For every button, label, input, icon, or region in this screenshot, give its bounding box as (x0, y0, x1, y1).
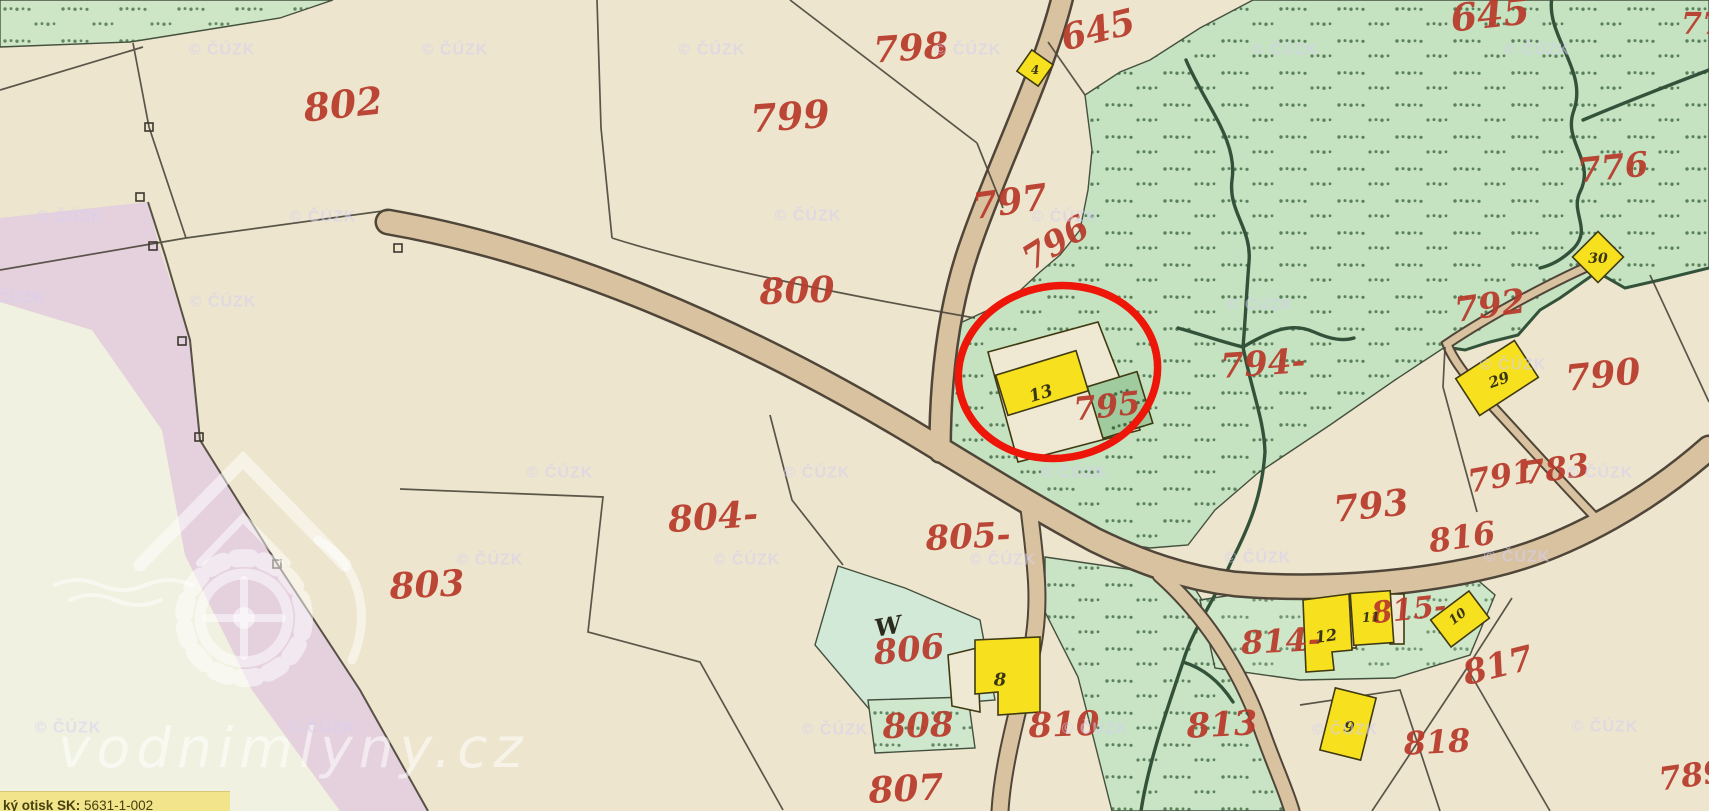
parcel-label-808: 808 (881, 705, 954, 747)
parcel-label-794: 794- (1219, 341, 1307, 387)
copyright-watermark: © ČÚZK (457, 550, 524, 569)
copyright-watermark: © ČÚZK (35, 718, 102, 737)
building-label-30: 30 (1588, 251, 1608, 267)
parcel-label-776: 776 (1576, 144, 1651, 191)
copyright-watermark: © ČÚZK (1484, 547, 1551, 566)
copyright-watermark: © ČÚZK (784, 463, 851, 482)
parcel-label-802: 802 (300, 77, 385, 130)
parcel-label-800: 800 (758, 269, 836, 314)
parcel-label-813: 813 (1185, 703, 1259, 747)
building-label-12: 12 (1314, 625, 1339, 647)
copyright-watermark: © ČÚZK (1227, 295, 1294, 314)
parcel-label-803: 803 (387, 562, 465, 608)
parcel-label-790: 790 (1563, 350, 1642, 400)
building-label-4: 4 (1031, 63, 1039, 77)
parcel-label-818: 818 (1402, 721, 1472, 762)
building-label-11: 11 (1361, 610, 1380, 626)
parcel-label-807: 807 (866, 766, 944, 811)
copyright-watermark: © ČÚZK (802, 720, 869, 739)
cadastral-map-canvas: 80279864564577799797796776800792794-7907… (0, 0, 1709, 811)
copyright-watermark: © ČÚZK (1225, 548, 1292, 567)
copyright-watermark: © ČÚZK (37, 207, 104, 226)
copyright-watermark: © ČÚZK (1480, 355, 1547, 374)
parcel-label-77: 77 (1681, 7, 1709, 42)
copyright-watermark: © ČÚZK (1062, 719, 1129, 738)
copyright-watermark: © ČÚZK (1041, 463, 1108, 482)
copyright-watermark: © ČÚZK (679, 40, 746, 59)
copyright-watermark: © ČÚZK (0, 288, 45, 307)
map-sheet-tooltip: ký otisk SK: 5631-1-002 (0, 791, 230, 811)
copyright-watermark: © ČÚZK (714, 550, 781, 569)
parcel-label-814: 814- (1239, 620, 1322, 662)
sheet-tooltip-value: 5631-1-002 (84, 798, 153, 811)
map-viewport[interactable]: 80279864564577799797796776800792794-7907… (0, 0, 1709, 811)
parcel-label-793: 793 (1331, 481, 1410, 531)
copyright-watermark: © ČÚZK (1567, 463, 1634, 482)
copyright-watermark: © ČÚZK (190, 292, 257, 311)
sheet-tooltip-label: ký otisk SK: (3, 798, 80, 811)
copyright-watermark: © ČÚZK (289, 718, 356, 737)
copyright-watermark: © ČÚZK (422, 40, 489, 59)
copyright-watermark: © ČÚZK (1312, 720, 1379, 739)
copyright-watermark: © ČÚZK (775, 206, 842, 225)
copyright-watermark: © ČÚZK (1572, 717, 1639, 736)
building-label-8: 8 (993, 670, 1007, 691)
copyright-watermark: © ČÚZK (527, 463, 594, 482)
copyright-watermark: © ČÚZK (189, 40, 256, 59)
parcel-label-804: 804- (666, 493, 760, 541)
copyright-watermark: © ČÚZK (935, 40, 1002, 59)
parcel-label-799: 799 (749, 91, 831, 141)
copyright-watermark: © ČÚZK (1504, 40, 1571, 59)
copyright-watermark: © ČÚZK (1252, 40, 1319, 59)
copyright-watermark: © ČÚZK (970, 550, 1037, 569)
copyright-watermark: © ČÚZK (290, 207, 357, 226)
copyright-watermark: © ČÚZK (1032, 207, 1099, 226)
